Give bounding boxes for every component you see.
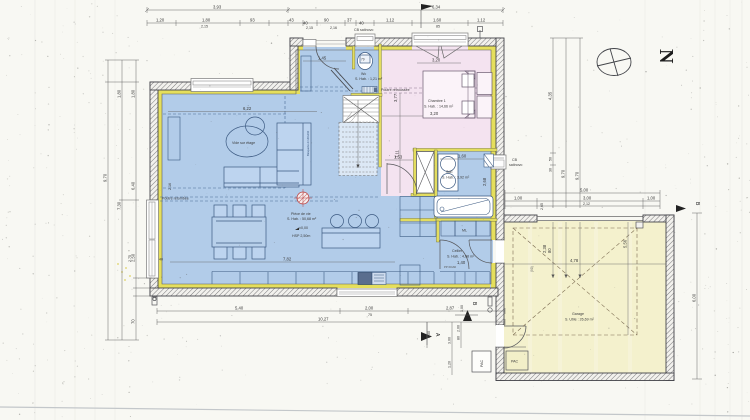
svg-text:Chambre 1: Chambre 1 [428,99,446,103]
svg-text:1,40: 1,40 [457,260,466,265]
svg-text:(90): (90) [530,266,534,272]
svg-text:1,00: 1,00 [514,196,523,201]
svg-text:37: 37 [347,18,352,23]
svg-text:7,82: 7,82 [283,257,292,262]
svg-text:1,53: 1,53 [394,155,403,160]
svg-text:3,20: 3,20 [432,58,441,63]
svg-text:4,35: 4,35 [548,91,553,100]
svg-text:1,20: 1,20 [448,361,452,368]
svg-text:10,27: 10,27 [318,317,329,322]
svg-text:CB satinovo: CB satinovo [354,28,373,32]
svg-text:2,68: 2,68 [482,177,487,186]
svg-text:1,80: 1,80 [117,89,122,98]
svg-text:85: 85 [436,25,440,29]
svg-text:40: 40 [303,21,308,26]
svg-text:5,00: 5,00 [580,188,589,193]
svg-text:S. Utile : 26,69 m²: S. Utile : 26,69 m² [565,318,595,322]
svg-text:2,12: 2,12 [583,202,590,206]
svg-text:93: 93 [250,18,255,23]
svg-text:ML: ML [462,229,467,233]
svg-text:PAC: PAC [511,360,519,364]
svg-text:1,00: 1,00 [647,196,656,201]
svg-text:9,70: 9,70 [103,173,108,182]
svg-text:2,16: 2,16 [330,26,337,30]
svg-text:9,70: 9,70 [561,169,566,178]
svg-text:S. Hab. : 1,21 m²: S. Hab. : 1,21 m² [355,77,383,81]
svg-text:79: 79 [361,58,365,62]
svg-text:1,12: 1,12 [386,18,395,23]
svg-text:Cellier: Cellier [452,249,463,253]
svg-text:satinovo: satinovo [509,163,522,167]
svg-text:7,30: 7,30 [117,201,122,210]
svg-text:Garage: Garage [572,312,584,316]
svg-text:2,16: 2,16 [168,183,172,190]
svg-text:40: 40 [359,21,364,26]
svg-text:2,15: 2,15 [201,25,208,29]
svg-text:PP 60x60: PP 60x60 [444,265,457,269]
svg-text:2,38: 2,38 [542,244,547,253]
svg-text:1,80: 1,80 [131,89,136,98]
svg-text:2,15: 2,15 [306,26,313,30]
svg-text:2,87: 2,87 [446,306,455,311]
svg-text:3,77: 3,77 [393,93,398,102]
svg-text:1,12: 1,12 [477,18,486,23]
svg-text:1,45: 1,45 [318,56,327,61]
svg-text:50: 50 [549,157,553,161]
svg-text:4,78: 4,78 [570,258,579,263]
svg-text:SdE: SdE [446,170,453,174]
svg-text:3,20: 3,20 [430,111,439,116]
svg-text:N: N [655,49,677,64]
svg-text:±0,00: ±0,00 [299,226,308,230]
svg-text:40: 40 [159,258,163,262]
svg-text:3,00: 3,00 [448,337,452,344]
svg-text:1,60: 1,60 [458,154,467,159]
svg-text:PAC: PAC [480,359,484,367]
svg-text:S. Hab. : 3,92 m²: S. Hab. : 3,92 m² [442,176,470,180]
svg-text:1,60: 1,60 [433,18,442,23]
svg-text:43: 43 [289,18,294,23]
svg-text:CB: CB [512,158,518,162]
svg-text:2,00: 2,00 [457,325,461,332]
svg-text:3,00: 3,00 [427,331,431,338]
svg-text:2,00: 2,00 [365,306,374,311]
svg-text:6,40: 6,40 [131,181,136,190]
svg-text:1,20: 1,20 [156,18,165,23]
svg-text:Banquette-lit 140x190: Banquette-lit 140x190 [306,130,310,156]
svg-text:6,22: 6,22 [243,106,252,111]
svg-text:Pièce de vie: Pièce de vie [291,212,311,216]
svg-text:Wc: Wc [361,72,366,76]
svg-text:80: 80 [547,248,552,253]
svg-text:3,93: 3,93 [213,5,222,10]
svg-text:S. Hab. : 50,68 m²: S. Hab. : 50,68 m² [287,217,317,221]
svg-text:3,00: 3,00 [583,196,592,201]
svg-text:6,34: 6,34 [432,5,441,10]
svg-text:HSP 2,50m: HSP 2,50m [292,234,310,238]
svg-text:80: 80 [457,336,461,340]
svg-text:2,75: 2,75 [128,255,132,262]
svg-text:Vide sur étage: Vide sur étage [232,141,255,145]
svg-text:2,65: 2,65 [540,203,544,210]
svg-text:75: 75 [368,313,372,317]
svg-text:90: 90 [324,18,329,23]
svg-text:70: 70 [131,319,136,324]
svg-text:1,80: 1,80 [202,18,211,23]
svg-text:Poutre retroussée: Poutre retroussée [381,88,410,92]
svg-text:Poutre retombée: Poutre retombée [162,197,189,201]
svg-text:5,40: 5,40 [235,306,244,311]
svg-text:30: 30 [549,168,553,172]
svg-text:5,56: 5,56 [623,239,628,248]
svg-text:9,70: 9,70 [575,171,580,180]
svg-text:S. Hab. : 14,66 m²: S. Hab. : 14,66 m² [424,105,454,109]
svg-text:6,00: 6,00 [692,293,697,302]
svg-text:1,00: 1,00 [460,305,464,312]
svg-text:S. Hab. : 4,08 m²: S. Hab. : 4,08 m² [447,255,475,259]
